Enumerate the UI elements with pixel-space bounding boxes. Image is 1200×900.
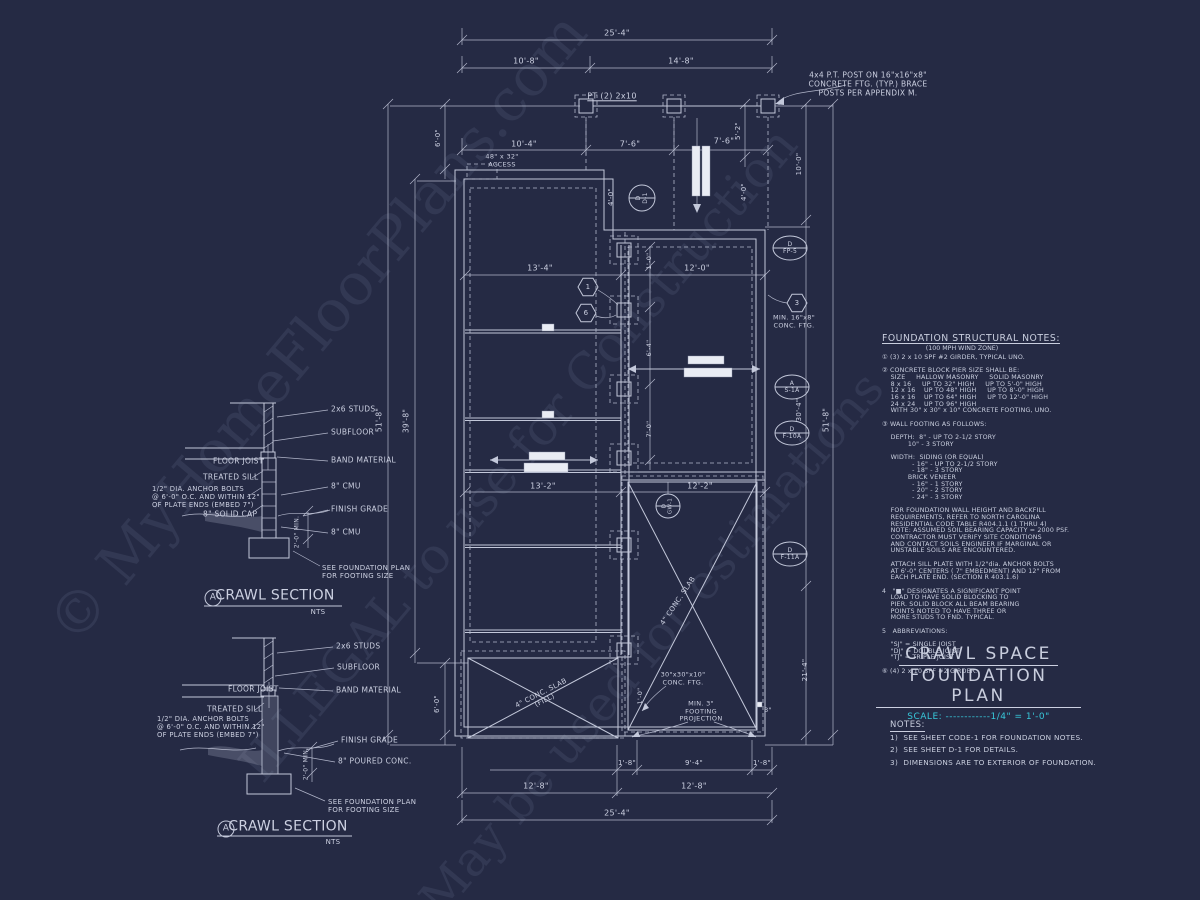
callout-f10a: D F-10A	[783, 426, 802, 440]
callout-fp5: D FP-5	[783, 241, 797, 255]
hex-6-label: 6	[584, 309, 589, 317]
ls-anchor-note: 1/2" DIA. ANCHOR BOLTS @ 6'-0" O.C. AND …	[157, 715, 265, 739]
dim-13-4: 13'-4"	[527, 263, 553, 272]
min-ftg-note: MIN. 16"x8" CONC. FTG.	[773, 314, 815, 329]
us-cmu-upper-label: 8" CMU	[331, 483, 361, 492]
us-section-bubble: A	[210, 593, 216, 604]
dim-10-4: 10'-4"	[511, 139, 537, 148]
section-floor-lines	[182, 403, 276, 697]
dim-4-0-a: 4'-0"	[607, 188, 615, 206]
ls-poured-label: 8" POURED CONC.	[338, 758, 412, 767]
ls-subfloor-label: SUBFLOOR	[337, 664, 380, 673]
dim-7-6-b: 7'-6"	[714, 136, 734, 145]
dim-13-2: 13'-2"	[530, 481, 556, 490]
center-beam-wall	[621, 245, 765, 655]
section-grade-fill-lower	[208, 746, 262, 766]
dim-6-4: 6'-4"	[646, 340, 654, 357]
callout-gw1: D GW-1	[662, 498, 675, 514]
dim-6-0-top: 6'-0"	[434, 129, 442, 147]
section-cmu-courses	[262, 470, 276, 530]
dim-1-8-b: 1'-8"	[753, 759, 771, 767]
dim-12-0: 12'-0"	[684, 263, 710, 272]
dim-10-8: 10'-8"	[513, 56, 539, 65]
dim-1-0-b: 1'-0"	[637, 688, 645, 705]
dim-10-0: 10'-0"	[795, 153, 803, 176]
callout-s1a: A S-1A	[784, 380, 799, 394]
dim-overall-bottom: 25'-4"	[604, 808, 630, 817]
post-note: 4x4 P.T. POST ON 16"x16"x8" CONCRETE FTG…	[809, 72, 928, 99]
ls-treated-sill-label: TREATED SILL	[207, 706, 263, 715]
us-section-title: CRAWL SECTION	[215, 588, 334, 605]
ls-dim-2-min: 2'-0" MIN.	[302, 748, 309, 780]
us-treated-sill-label: TREATED SILL	[203, 474, 259, 483]
dim-6-0-bottom: 6'-0"	[433, 695, 441, 713]
callout-d1: D D-1	[635, 192, 649, 204]
section-stud-hatch	[264, 406, 273, 683]
title-block: CRAWL SPACE FOUNDATION PLAN SCALE: -----…	[876, 644, 1081, 722]
us-studs-label: 2x6 STUDS	[331, 406, 375, 415]
girder-label: PT (2) 2x10	[587, 91, 636, 100]
leader-lines-plan	[596, 85, 846, 737]
dim-overall-top: 25'-4"	[604, 28, 630, 37]
drawing-title-line1: CRAWL SPACE	[899, 644, 1058, 666]
dim-39-8: 39'-8"	[403, 409, 412, 433]
dim-3in: 3"	[764, 707, 772, 715]
ls-studs-label: 2x6 STUDS	[336, 643, 380, 652]
structural-notes-body: ① (3) 2 x 10 SPF #2 GIRDER, TYPICAL UNO.…	[882, 355, 1087, 675]
us-cmu-lower-label: 8" CMU	[331, 529, 361, 538]
us-solid-cap-label: 8" SOLID CAP	[203, 511, 257, 520]
dim-12-8-b: 12'-8"	[681, 781, 707, 790]
extension-lines	[390, 106, 833, 823]
note-item: 2) SEE SHEET D-1 FOR DETAILS.	[890, 744, 1120, 756]
access-label: 48" x 32" ACCESS	[485, 153, 518, 168]
dim-30-4: 30'-4"	[795, 399, 803, 422]
ls-grade-label: FINISH GRADE	[341, 737, 398, 746]
us-subfloor-label: SUBFLOOR	[331, 429, 374, 438]
notes-list: 1) SEE SHEET CODE-1 FOR FOUNDATION NOTES…	[890, 732, 1120, 769]
us-floor-joist-label: FLOOR JOIST	[213, 458, 264, 467]
us-grade-label: FINISH GRADE	[331, 506, 388, 515]
us-see-fnd-label: SEE FOUNDATION PLAN FOR FOOTING SIZE	[322, 564, 410, 581]
blueprint-canvas: © MyHomeFloorPlans.com ILLEGAL to use fo…	[0, 0, 1200, 900]
dim-4-0-b: 4'-0"	[740, 183, 748, 201]
ls-floor-joist-label: FLOOR JOIST	[228, 686, 279, 695]
structural-notes-panel: FOUNDATION STRUCTURAL NOTES: (100 MPH WI…	[882, 333, 1087, 675]
dim-51-8-right: 51'-8"	[823, 408, 832, 432]
structural-notes-subtitle: (100 MPH WIND ZONE)	[882, 345, 1042, 352]
notes-block: NOTES: 1) SEE SHEET CODE-1 FOR FOUNDATIO…	[890, 712, 1120, 769]
ls-section-title: CRAWL SECTION	[228, 819, 347, 836]
ls-section-bubble: A	[223, 824, 229, 835]
dim-14-8: 14'-8"	[668, 56, 694, 65]
ls-band-label: BAND MATERIAL	[336, 687, 401, 696]
dim-21-4: 21'-4"	[801, 659, 809, 682]
dim-7-0: 7'-0"	[646, 421, 654, 438]
dim-12-2: 12'-2"	[687, 481, 713, 490]
dim-12-8-a: 12'-8"	[523, 781, 549, 790]
dim-9-4: 9'-4"	[685, 759, 703, 767]
ls-see-fnd-label: SEE FOUNDATION PLAN FOR FOOTING SIZE	[328, 798, 416, 815]
note-item: 1) SEE SHEET CODE-1 FOR FOUNDATION NOTES…	[890, 732, 1120, 744]
note-item: 3) DIMENSIONS ARE TO EXTERIOR OF FOUNDAT…	[890, 757, 1120, 769]
structural-notes-title: FOUNDATION STRUCTURAL NOTES:	[882, 333, 1087, 344]
us-anchor-note: 1/2" DIA. ANCHOR BOLTS @ 6'-0" O.C. AND …	[152, 485, 260, 509]
min-3-note: MIN. 3" FOOTING PROJECTION	[680, 701, 723, 724]
dim-5-2: 5'-2"	[734, 122, 742, 140]
dim-1-8-a: 1'-8"	[618, 759, 636, 767]
hex-1-label: 1	[586, 283, 591, 291]
us-nts: NTS	[311, 608, 326, 616]
dashed-outlines	[461, 95, 779, 738]
callout-f11a: D F-11A	[781, 547, 800, 561]
dimension-lines	[308, 28, 833, 820]
dim-51-8-left: 51'-8"	[376, 408, 385, 432]
dim-1-0: 1'-0"	[646, 253, 654, 270]
dim-7-6-a: 7'-6"	[620, 139, 640, 148]
ls-nts: NTS	[326, 838, 341, 846]
pier-ftg-note: 30"x30"x10" CONC. FTG.	[661, 671, 706, 686]
hex-3-label: 3	[795, 299, 800, 307]
drawing-title-line2: FOUNDATION PLAN	[876, 666, 1081, 708]
us-dim-2-min: 2'-0" MIN.	[293, 516, 300, 548]
slab-x-right	[628, 482, 757, 730]
us-band-label: BAND MATERIAL	[331, 457, 396, 466]
notes-heading: NOTES:	[890, 720, 925, 732]
